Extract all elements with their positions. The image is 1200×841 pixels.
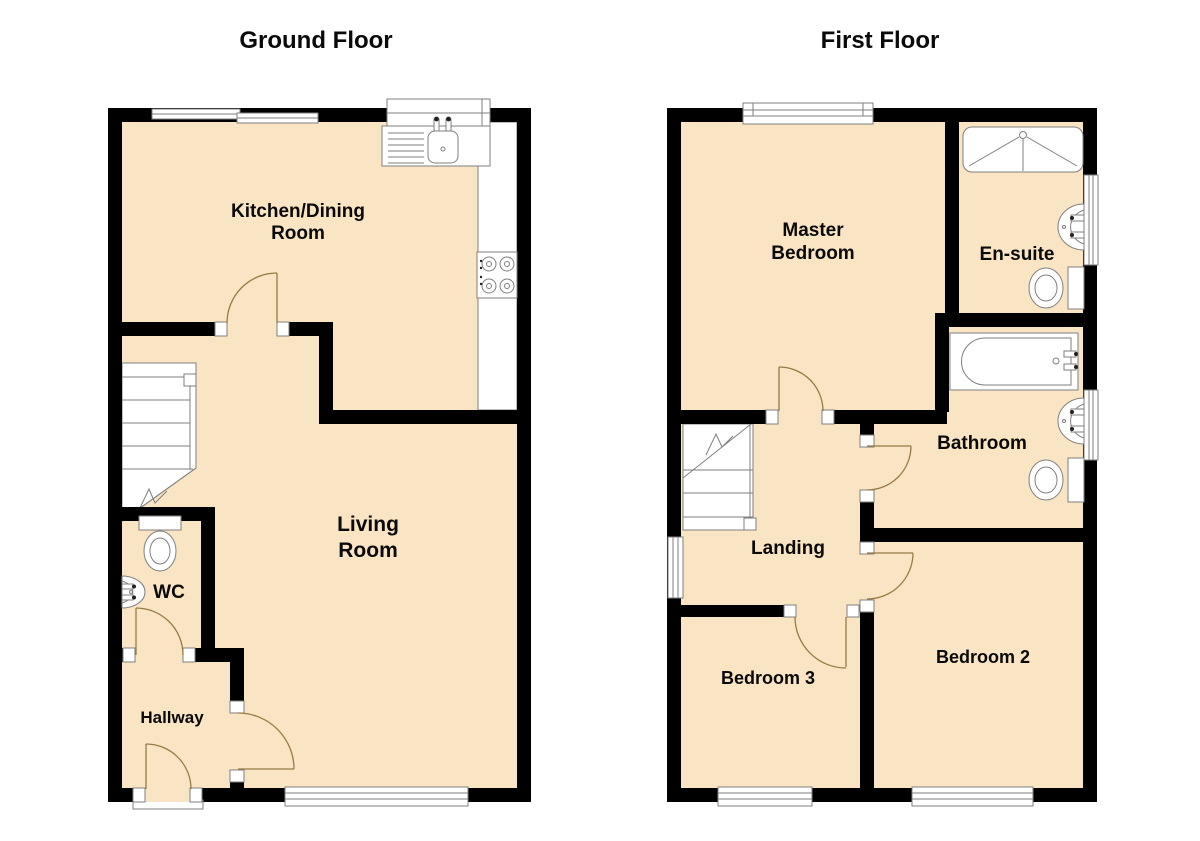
ensuite-window: [1084, 175, 1098, 265]
bedroom3-label: Bedroom 3: [721, 668, 815, 688]
landing-label: Landing: [751, 538, 825, 559]
ground-floor-plan: Ground Floor Kitchen/Dining Room Living …: [108, 27, 531, 809]
first-floor-title: First Floor: [821, 27, 940, 54]
hob-icon: [477, 252, 517, 298]
bedroom3-window: [718, 787, 812, 806]
landing-window: [668, 537, 683, 598]
first-floor-plan: First Floor Master Bedroom En-suite Bath…: [667, 27, 1098, 806]
master-label-line2: Bedroom: [771, 243, 854, 264]
bathroom-label: Bathroom: [937, 433, 1027, 454]
hallway-label: Hallway: [140, 708, 204, 727]
living-room-window: [285, 787, 468, 806]
bathroom-toilet-icon: [1029, 458, 1084, 502]
ensuite-label: En-suite: [980, 244, 1055, 265]
ensuite-toilet-icon: [1029, 267, 1084, 309]
stair-newel: [184, 374, 196, 386]
kitchen-label-line2: Room: [271, 223, 325, 244]
bedroom2-label: Bedroom 2: [936, 647, 1030, 667]
ground-floor-title: Ground Floor: [239, 27, 392, 54]
living-label-line1: Living: [337, 513, 399, 536]
first-stairs: [683, 424, 756, 530]
stair-newel: [744, 518, 756, 530]
floor-plan-page: Ground Floor Kitchen/Dining Room Living …: [0, 0, 1200, 841]
master-label-line1: Master: [782, 220, 844, 241]
bedroom2-window: [912, 787, 1033, 806]
wc-label: WC: [153, 582, 185, 603]
kitchen-label-line1: Kitchen/Dining: [231, 201, 365, 222]
floor-plan-drawing: Ground Floor Kitchen/Dining Room Living …: [0, 0, 1200, 841]
shower-icon: [963, 127, 1083, 172]
bathroom-window: [1084, 390, 1098, 460]
living-label-line2: Room: [338, 539, 398, 562]
bath-icon: [950, 333, 1078, 390]
master-bedroom-window: [743, 103, 873, 124]
